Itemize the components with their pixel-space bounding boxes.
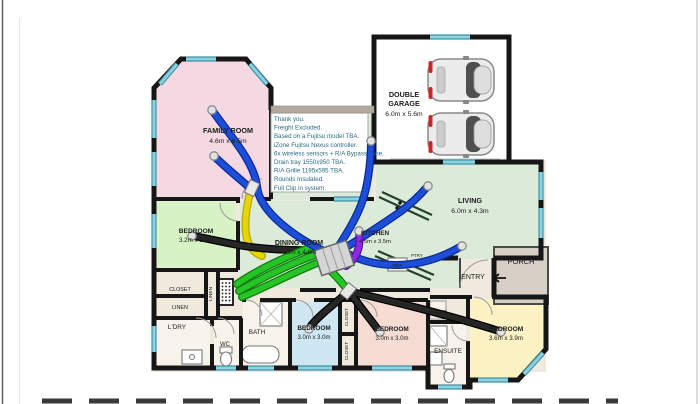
vent-icon	[458, 242, 466, 250]
porch-label: PORCH	[508, 257, 535, 266]
bedroom4-label: BEDROOM	[489, 326, 524, 333]
closet-vertical-label: CLOSET	[344, 342, 349, 361]
notes-line: Rounds Insulated.	[274, 176, 324, 183]
bedroom1-dims: 3.2m x 3.2m	[179, 237, 213, 244]
garage-dims: 6.0m x 5.6m	[385, 111, 423, 118]
ensuite-label: ENSUITE	[434, 348, 462, 355]
living-dims: 6.0m x 4.3m	[451, 208, 489, 215]
vent-icon	[208, 106, 216, 114]
dining-label: DINING ROOM	[275, 240, 323, 247]
ensuite-toilet-icon	[444, 370, 454, 383]
linen-label: LINEN	[172, 305, 188, 311]
toilet-icon	[221, 352, 232, 366]
return-air-grille-icon	[219, 279, 233, 305]
bedroom4-dims: 3.6m x 3.9m	[489, 335, 523, 342]
family-room-dims: 4.6m x 6.5m	[209, 138, 247, 145]
linen-vertical-label: LINEN	[208, 286, 214, 301]
bedroom3-dims: 3.0m x 3.0m	[375, 336, 408, 342]
laundry-label: L'DRY	[168, 324, 187, 331]
vent-icon	[367, 137, 375, 145]
bath-label: BATH	[249, 329, 266, 336]
notes-line: R/A Grille 1195x595 TBA.	[274, 168, 344, 175]
wc-label: WC	[220, 342, 231, 348]
dining-dims: 4.5m x 4.0m	[282, 249, 317, 256]
notes-line: Thank you.	[274, 116, 305, 123]
ensuite-toilet-tank-icon	[444, 364, 455, 369]
kitchen-dims: 4.5m x 3.5m	[359, 239, 391, 245]
fridge-label: REF	[393, 263, 403, 269]
entry-label: ENTRY	[461, 274, 485, 281]
living-label: LIVING	[458, 196, 482, 205]
notes-line: Drain tray 1550x950 TBA.	[274, 159, 345, 166]
floor-plan-page: Thank you. Freight Excluded. Based on a …	[0, 0, 700, 404]
garage-label-1: DOUBLE	[389, 90, 420, 99]
notes-top-bar	[271, 106, 374, 113]
bedroom2-label: BEDROOM	[297, 325, 330, 332]
notes-line: Full Clip in system.	[274, 185, 326, 192]
bedroom3-label: BEDROOM	[375, 326, 408, 333]
pantry-label: PTRY	[411, 253, 423, 258]
car-icon	[428, 110, 494, 158]
family-room-label: FAMILY ROOM	[203, 126, 253, 135]
bedroom2-dims: 3.0m x 3.0m	[297, 335, 330, 341]
vent-icon	[424, 182, 432, 190]
notes-line: iZone Fujitsu Nexus controller.	[274, 142, 358, 149]
floor-plan-drawing: Thank you. Freight Excluded. Based on a …	[0, 0, 700, 404]
garage-label-2: GARAGE	[388, 99, 420, 108]
closet-small-label: CLOSET	[429, 309, 447, 314]
notes-line: Based on a Fujitsu model TBA.	[274, 133, 359, 140]
bathtub-icon	[242, 346, 279, 363]
car-icon	[428, 56, 494, 104]
vent-icon	[210, 152, 218, 160]
bedroom1-label: BEDROOM	[179, 228, 214, 235]
notes-line: Freight Excluded.	[274, 125, 322, 132]
laundry-tub-icon	[182, 350, 202, 364]
kitchen-label: KITCHEN	[361, 230, 389, 237]
closet-vertical-label: CLOSET	[344, 308, 349, 327]
closet-label: CLOSET	[169, 287, 191, 293]
